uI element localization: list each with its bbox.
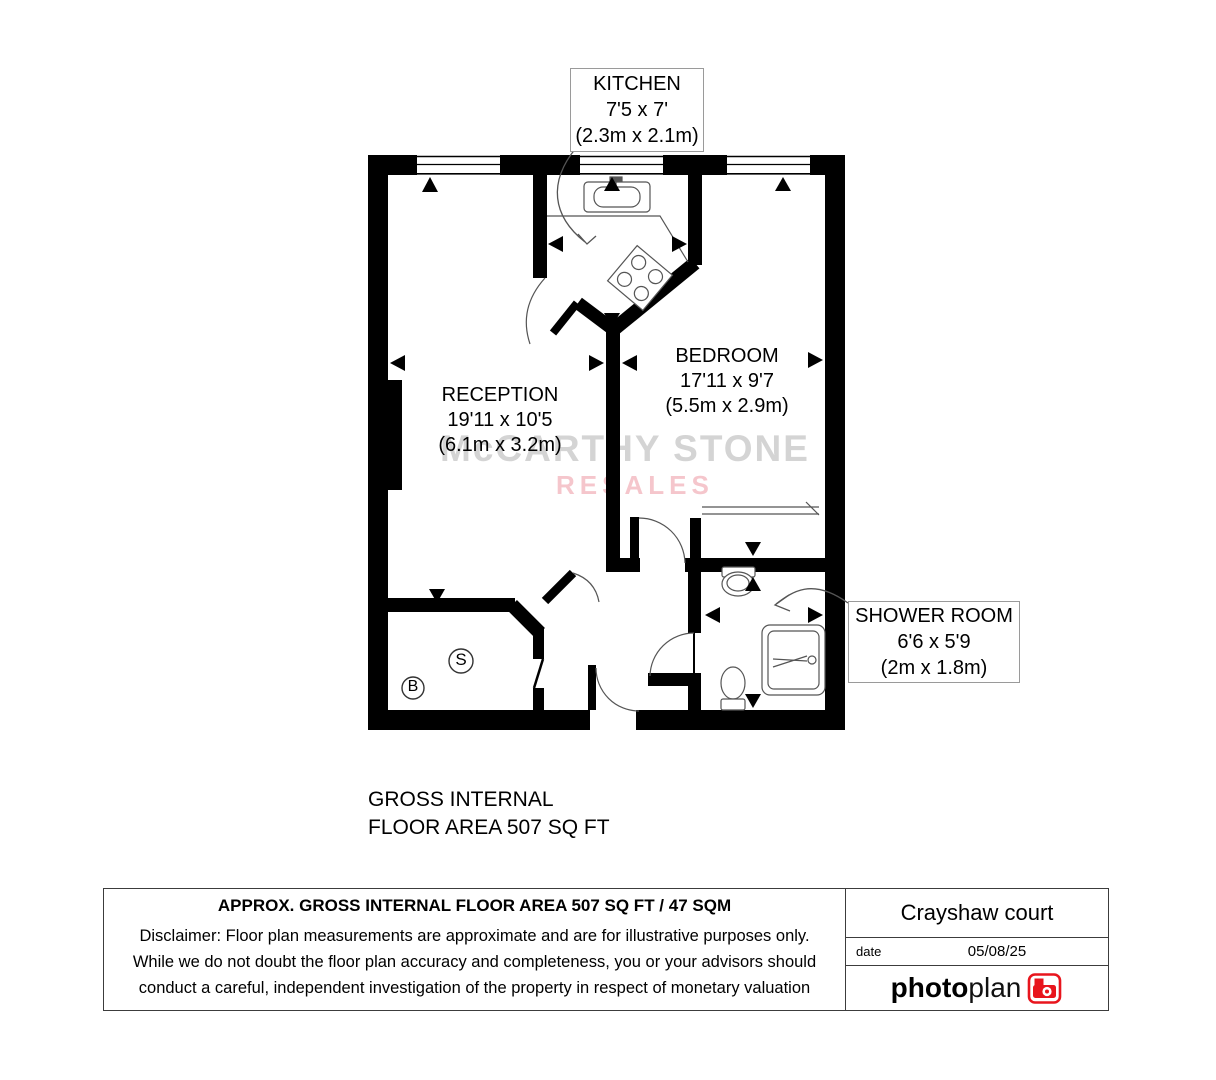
kitchen-counter [547,216,688,262]
kitchen-metric-dims: (2.3m x 2.1m) [571,123,703,149]
gross-internal-area: GROSS INTERNAL FLOOR AREA 507 SQ FT [368,786,610,842]
property-name: Crayshaw court [846,889,1108,938]
disclaimer-line2: While we do not doubt the floor plan acc… [104,949,845,975]
wall-pillar [368,380,402,490]
reception-metric-dims: (6.1m x 3.2m) [415,433,585,458]
window-bedroom [727,155,810,175]
shower-left-wall [688,572,701,633]
bedroom-name: BEDROOM [647,344,807,369]
shower-room-metric-dims: (2m x 1.8m) [849,655,1019,681]
camera-icon [1027,972,1063,1005]
shower-room-name: SHOWER ROOM [849,603,1019,629]
arrow-bedroom-right [808,352,823,368]
date-row: date 05/08/25 [846,938,1108,966]
approx-area-title: APPROX. GROSS INTERNAL FLOOR AREA 507 SQ… [104,896,845,916]
shower-leader-arrowhead [775,595,790,611]
reception-label: RECEPTION 19'11 x 10'5 (6.1m x 3.2m) [415,383,585,458]
arrow-shower-down [745,694,761,708]
disclaimer-text: Disclaimer: Floor plan measurements are … [104,923,845,1001]
reception-bedroom-divider [606,324,620,572]
arrow-reception-up [422,177,438,192]
brand-plan: plan [968,972,1021,1004]
arrow-kitchen-left [548,236,563,252]
kitchen-right-wall [688,175,702,265]
footer-right-column: Crayshaw court date 05/08/25 photoplan [846,889,1108,1010]
disclaimer-line1: Disclaimer: Floor plan measurements are … [104,923,845,949]
footer-info-table: APPROX. GROSS INTERNAL FLOOR AREA 507 SQ… [103,888,1109,1011]
bedroom-door [630,517,685,565]
kitchen-door [526,278,577,344]
kitchen-sink [584,177,650,212]
kitchen-imperial-dims: 7'5 x 7' [571,97,703,123]
reception-name: RECEPTION [415,383,585,408]
shower-room-label-box: SHOWER ROOM 6'6 x 5'9 (2m x 1.8m) [848,601,1020,683]
entry-door [596,668,639,711]
photoplan-wordmark: photoplan [891,972,1022,1004]
photoplan-logo: photoplan [846,966,1108,1010]
disclaimer-line3: conduct a careful, independent investiga… [104,975,845,1001]
shower-door [650,633,694,676]
gross-area-line2: FLOOR AREA 507 SQ FT [368,814,610,842]
brand-photo: photo [891,972,969,1004]
arrow-bedroom-left [622,355,637,371]
storage-letter: S [453,650,469,670]
shower-room-imperial-dims: 6'6 x 5'9 [849,629,1019,655]
reception-door [545,573,599,602]
kitchen-left-wall [533,175,547,278]
kitchen-name: KITCHEN [571,71,703,97]
windows [417,155,810,175]
arrow-shower-right [808,607,823,623]
arrow-reception-right [589,355,604,371]
date-value: 05/08/25 [916,943,1108,960]
bedroom-label: BEDROOM 17'11 x 9'7 (5.5m x 2.9m) [647,344,807,419]
bedroom-metric-dims: (5.5m x 2.9m) [647,394,807,419]
entry-wall-stub [588,665,596,710]
gross-area-line1: GROSS INTERNAL [368,786,610,814]
window-kitchen [580,155,663,175]
arrow-shower-left [705,607,720,623]
storage-door [534,659,543,688]
boiler-letter: B [405,678,421,696]
toilet [721,667,745,710]
footer-left-cell: APPROX. GROSS INTERNAL FLOOR AREA 507 SQ… [104,889,846,1010]
arrow-reception-left [390,355,405,371]
bedroom-imperial-dims: 17'11 x 9'7 [647,369,807,394]
kitchen-label-box: KITCHEN 7'5 x 7' (2.3m x 2.1m) [570,68,704,152]
floorplan-page: { "floorplan": { "kitchen": {"name":"KIT… [0,0,1216,1080]
shower-tray [762,625,825,695]
window-reception [417,155,500,175]
storage-top-wall [388,598,515,612]
date-label: date [846,944,916,959]
storage-right-wall [533,628,544,659]
arrow-kitchen-right [672,236,687,252]
arrow-bedroom-down [745,542,761,556]
bedroom-wardrobe [702,502,819,515]
wash-basin [722,567,755,596]
arrow-bedroom-up [775,177,791,191]
kitchen-hob [608,246,673,311]
reception-imperial-dims: 19'11 x 10'5 [415,408,585,433]
